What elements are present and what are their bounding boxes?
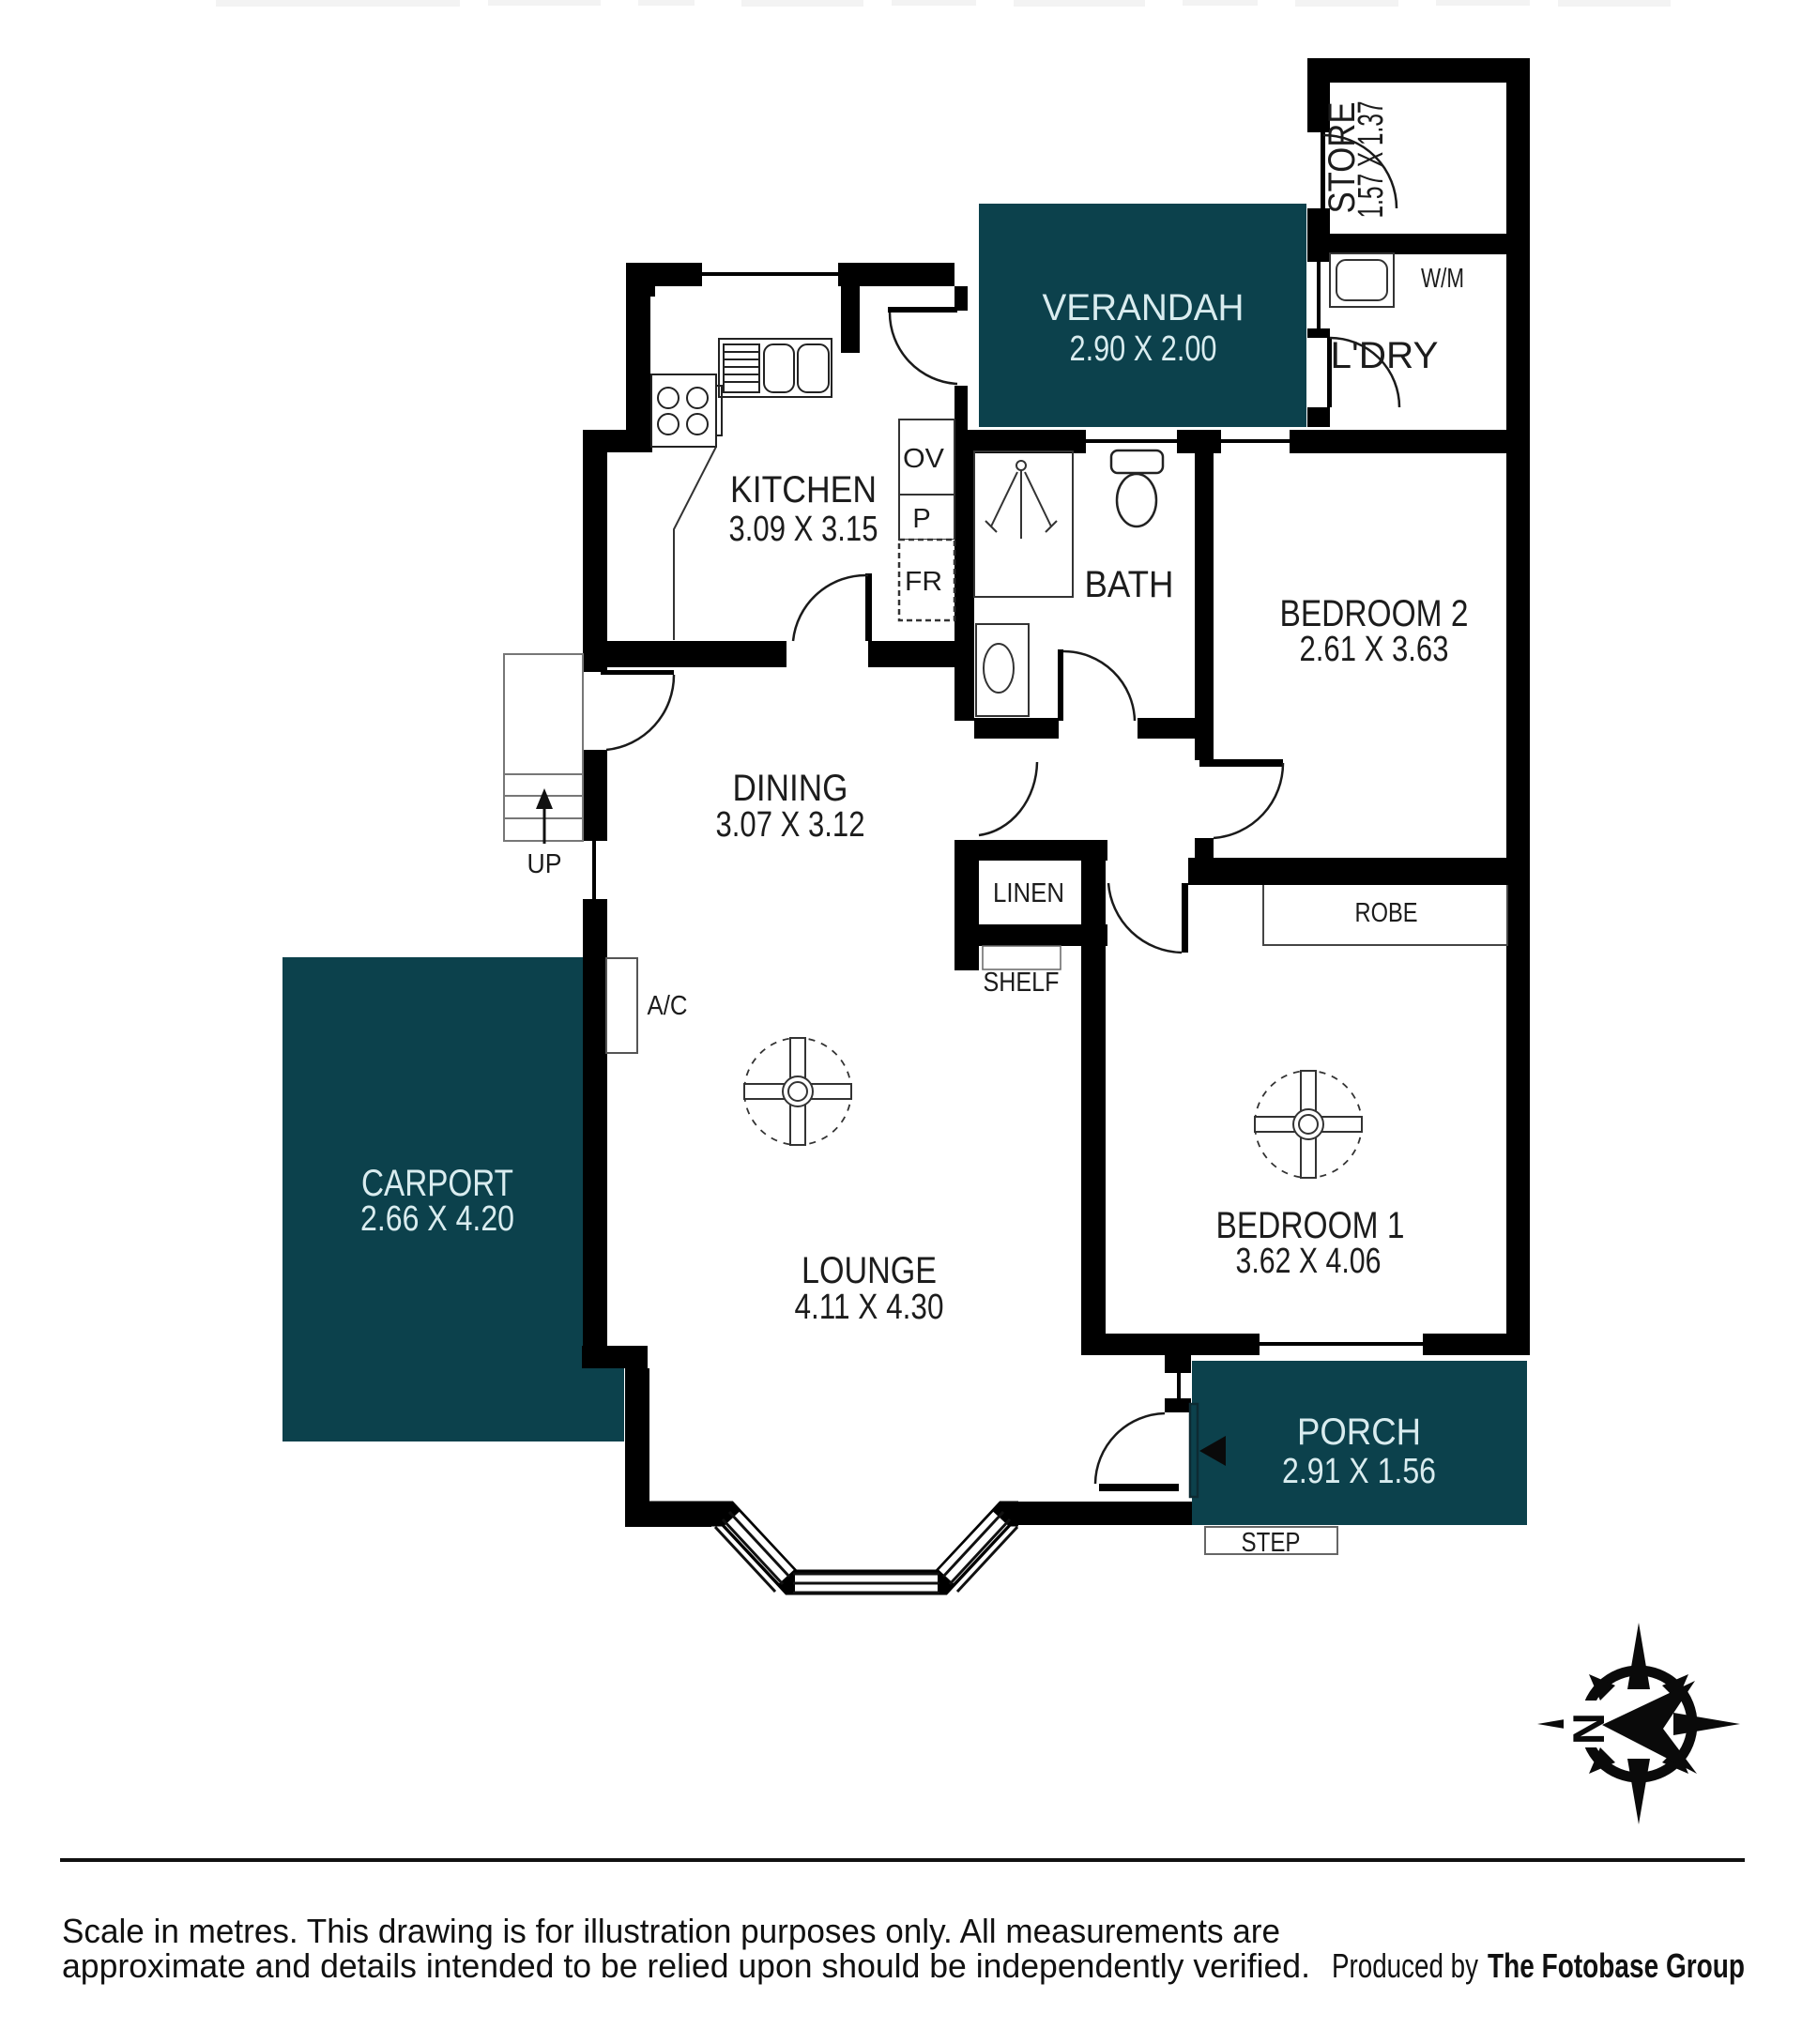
svg-text:Produced by: Produced by: [1332, 1946, 1478, 1985]
svg-text:CARPORT: CARPORT: [361, 1163, 513, 1204]
svg-text:BATH: BATH: [1085, 564, 1174, 605]
svg-text:2.91 X 1.56: 2.91 X 1.56: [1282, 1452, 1436, 1491]
svg-text:Scale in metres. This drawing: Scale in metres. This drawing is for ill…: [62, 1912, 1280, 1950]
svg-text:ROBE: ROBE: [1355, 898, 1418, 928]
svg-text:3.62 X 4.06: 3.62 X 4.06: [1236, 1242, 1382, 1281]
svg-text:UP: UP: [527, 849, 562, 879]
svg-text:3.09 X 3.15: 3.09 X 3.15: [729, 510, 878, 549]
svg-text:2.90 X 2.00: 2.90 X 2.00: [1070, 329, 1217, 369]
svg-text:PORCH: PORCH: [1297, 1411, 1421, 1453]
svg-text:BEDROOM 2: BEDROOM 2: [1280, 593, 1469, 634]
svg-text:P: P: [912, 504, 930, 534]
svg-text:W/M: W/M: [1421, 264, 1464, 294]
svg-text:LINEN: LINEN: [993, 878, 1064, 908]
svg-text:BEDROOM 1: BEDROOM 1: [1216, 1205, 1405, 1246]
svg-text:L'DRY: L'DRY: [1331, 335, 1439, 376]
svg-text:A/C: A/C: [648, 991, 688, 1021]
svg-text:4.11 X 4.30: 4.11 X 4.30: [795, 1288, 944, 1327]
svg-text:VERANDAH: VERANDAH: [1043, 287, 1245, 328]
svg-text:DINING: DINING: [733, 768, 848, 809]
svg-text:LOUNGE: LOUNGE: [802, 1250, 937, 1291]
svg-text:SHELF: SHELF: [984, 968, 1060, 998]
svg-text:The Fotobase Group: The Fotobase Group: [1488, 1946, 1745, 1985]
svg-text:2.66 X 4.20: 2.66 X 4.20: [360, 1199, 514, 1239]
svg-text:N: N: [1564, 1713, 1613, 1745]
svg-text:KITCHEN: KITCHEN: [730, 469, 877, 511]
svg-text:approximate and details intend: approximate and details intended to be r…: [62, 1946, 1310, 1985]
svg-text:2.61 X 3.63: 2.61 X 3.63: [1300, 630, 1449, 669]
svg-text:1.57 X 1.37: 1.57 X 1.37: [1351, 101, 1391, 219]
svg-text:3.07 X 3.12: 3.07 X 3.12: [716, 805, 865, 845]
svg-text:OV: OV: [903, 444, 945, 474]
svg-text:FR: FR: [905, 567, 942, 597]
svg-text:STEP: STEP: [1242, 1528, 1301, 1558]
